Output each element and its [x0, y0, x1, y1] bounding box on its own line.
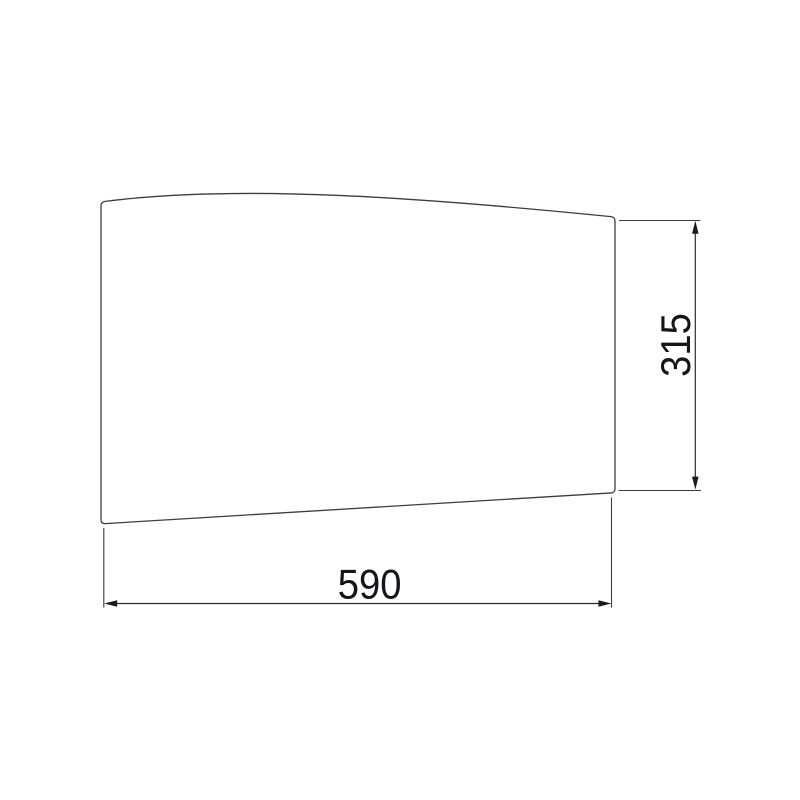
svg-text:315: 315: [653, 313, 699, 377]
svg-text:590: 590: [338, 562, 402, 608]
